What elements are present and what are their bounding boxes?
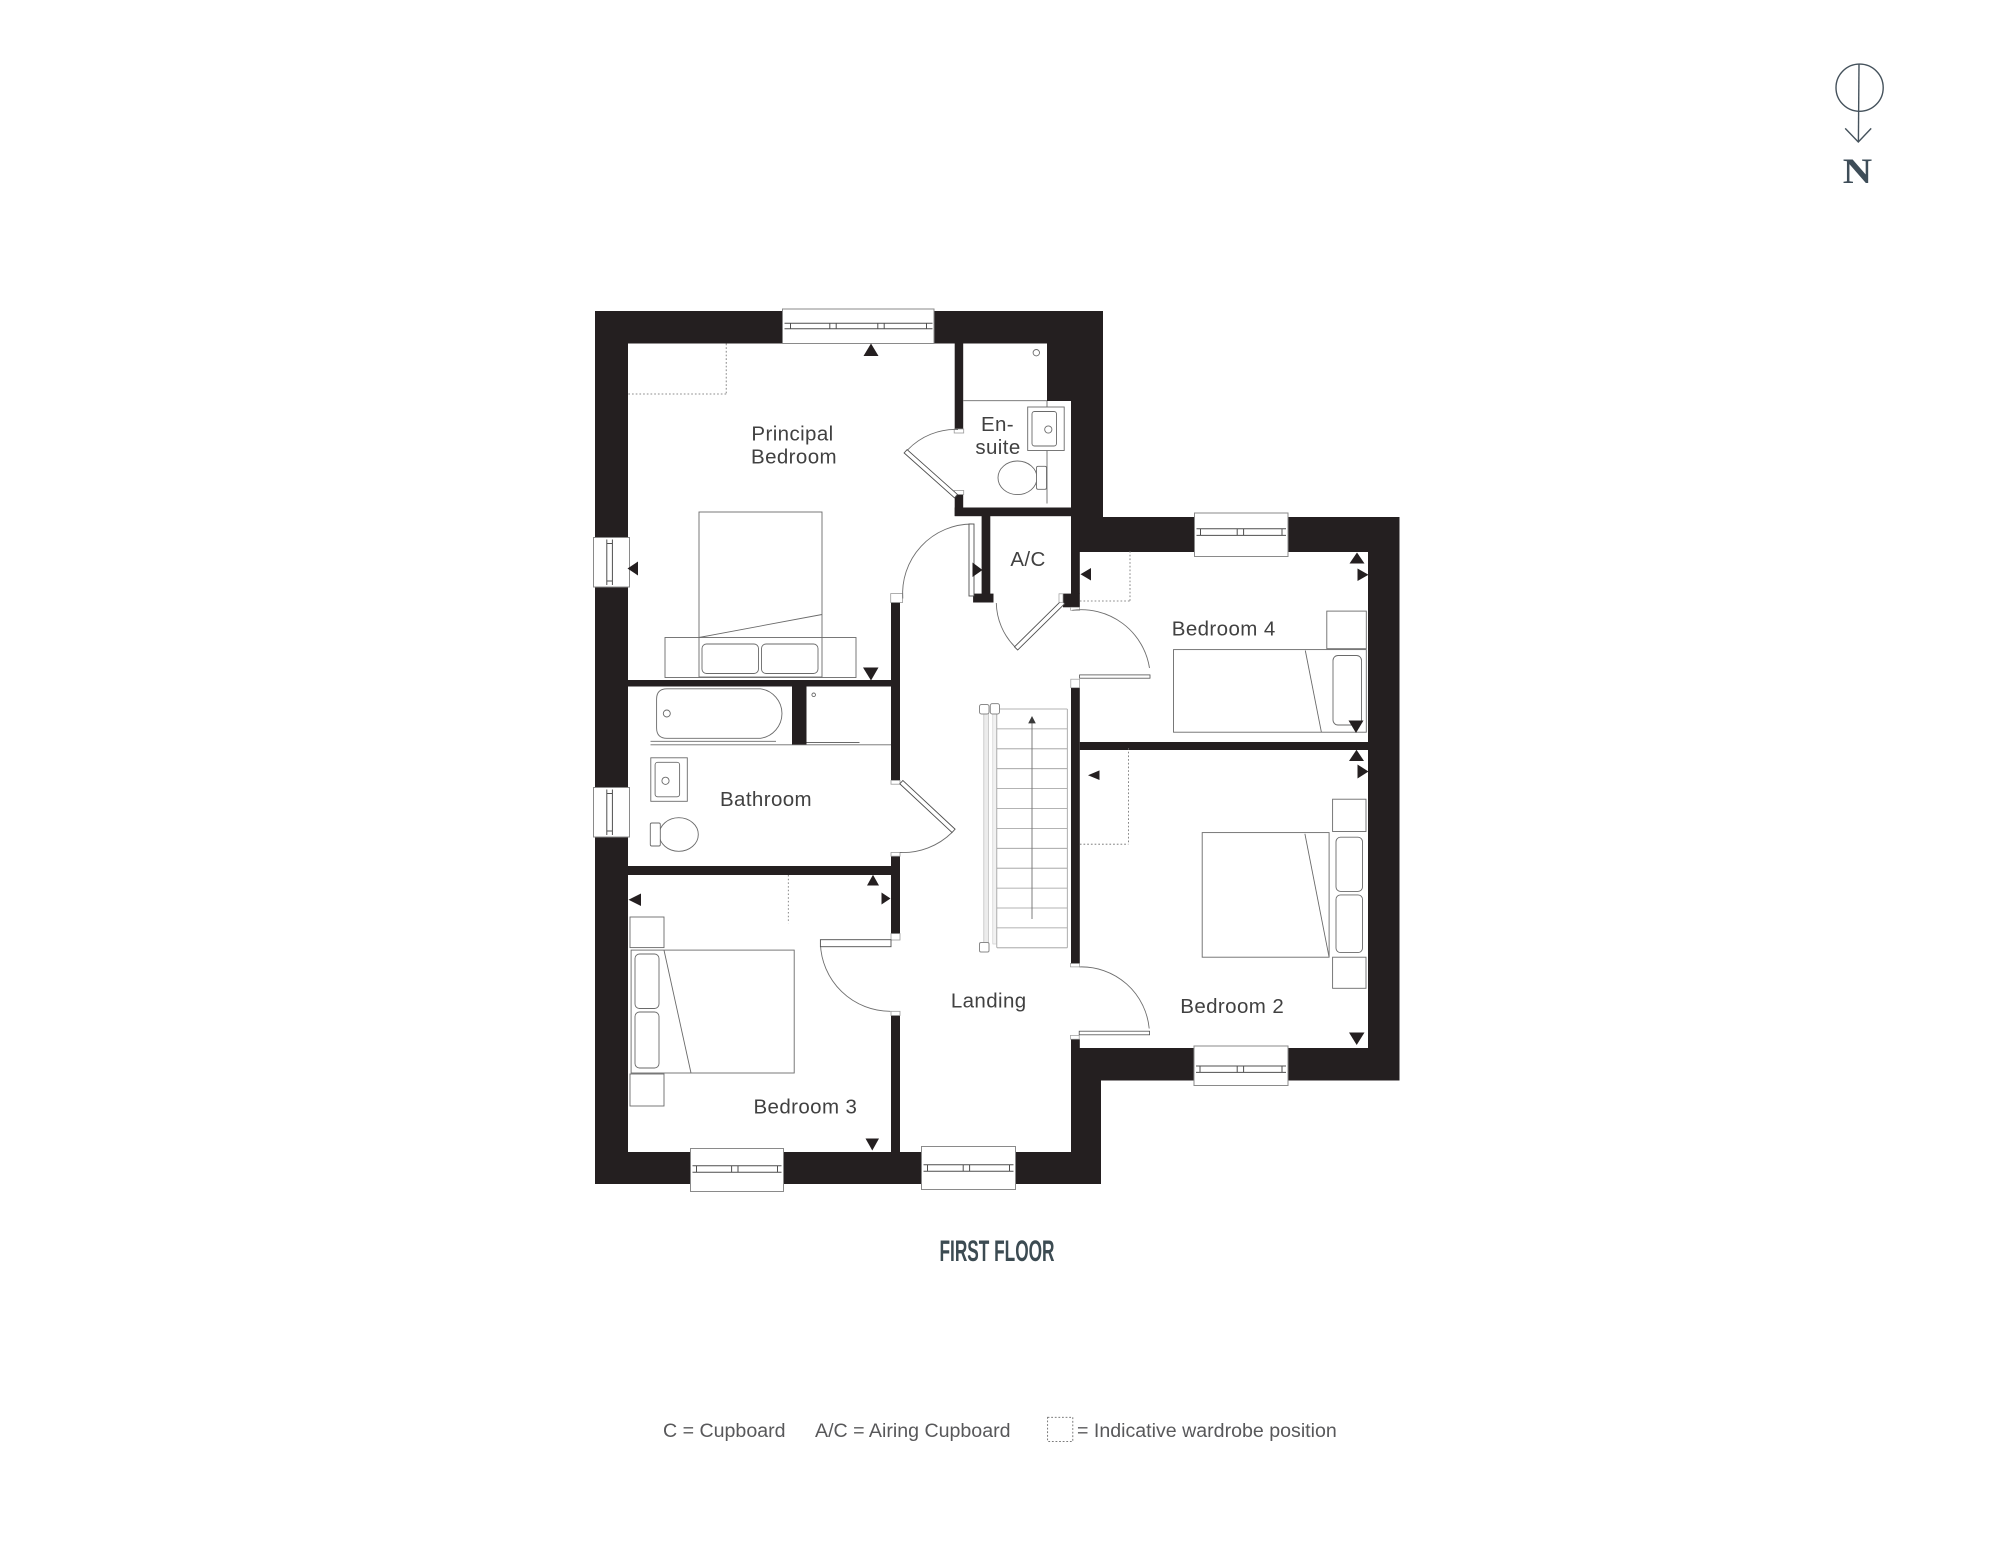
svg-text:Bedroom 4: Bedroom 4 [1172,617,1276,640]
svg-text:Principal: Principal [751,422,833,445]
svg-text:Bathroom: Bathroom [720,788,812,811]
svg-text:Bedroom 2: Bedroom 2 [1180,995,1284,1018]
svg-text:N: N [1843,152,1873,191]
svg-text:Bedroom 3: Bedroom 3 [753,1096,857,1119]
svg-text:suite: suite [975,436,1020,459]
svg-text:C = Cupboard: C = Cupboard [663,1420,786,1442]
svg-text:A/C = Airing Cupboard: A/C = Airing Cupboard [815,1420,1011,1442]
svg-text:A/C: A/C [1010,548,1045,571]
svg-text:En-: En- [981,413,1014,436]
svg-text:Bedroom: Bedroom [751,445,837,468]
svg-text:Landing: Landing [951,990,1027,1013]
svg-text:FIRST FLOOR: FIRST FLOOR [940,1235,1055,1268]
svg-text:= Indicative wardrobe position: = Indicative wardrobe position [1077,1420,1337,1442]
